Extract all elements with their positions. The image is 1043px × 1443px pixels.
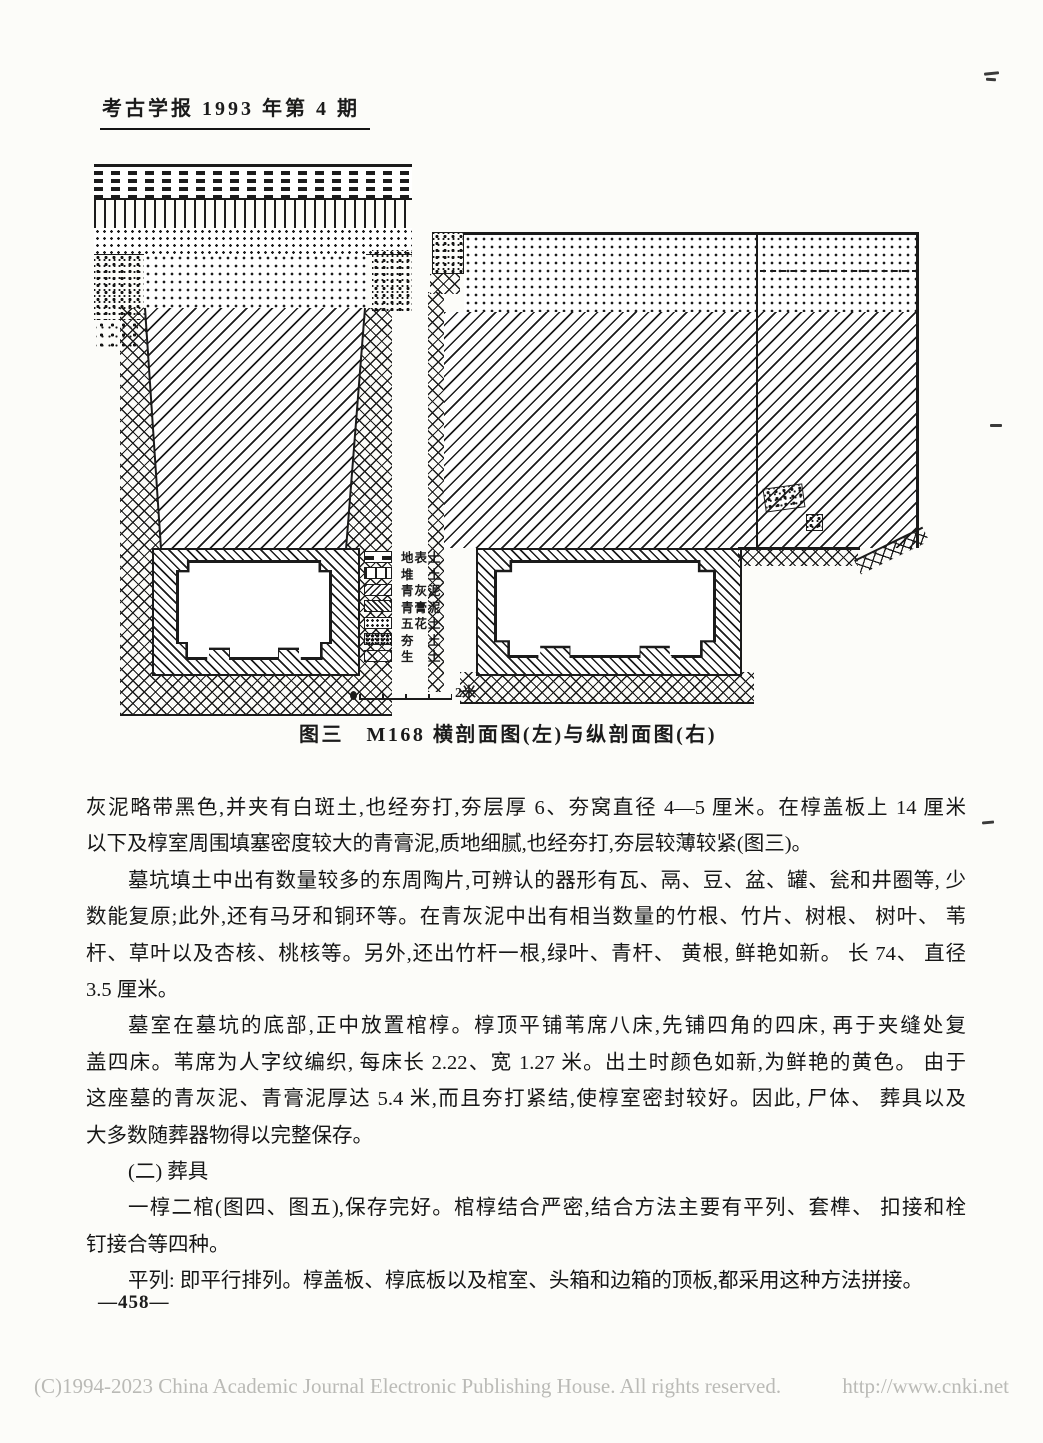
grey-clay-fill <box>144 308 366 548</box>
legend-label: 生 土 <box>401 646 442 665</box>
grey-clay-fill-right <box>444 312 919 548</box>
legend-swatch-piled-soil <box>364 567 392 579</box>
body-line: 钉接合等四种。 <box>86 1227 966 1263</box>
body-line: 以下及椁室周围填塞密度较大的青膏泥,质地细腻,也经夯打,夯层较薄较紧(图三)。 <box>86 826 966 862</box>
cnki-footer: (C)1994-2023 China Academic Journal Elec… <box>34 1374 1009 1399</box>
section-divider <box>756 312 758 548</box>
legend-swatch-paste-clay <box>364 600 392 612</box>
coffin-chamber <box>179 563 329 657</box>
body-line: 平列: 即平行排列。椁盖板、椁底板以及棺室、头箱和边箱的顶板,都采用这种方法拼接… <box>86 1263 966 1299</box>
section-heading: (二) 葬具 <box>86 1154 966 1190</box>
coffin-chamber-right <box>497 563 713 655</box>
body-line: 数能复原;此外,还有马牙和铜环等。在青灰泥中出有相当数量的竹根、竹片、树根、 树… <box>86 899 966 935</box>
rammed-earth-right-block <box>372 250 412 312</box>
scale-bar: 2米 <box>350 682 476 700</box>
figure-caption: 图三 M168 横剖面图(左)与纵剖面图(右) <box>88 718 928 747</box>
scale-line <box>359 692 452 700</box>
legend: 地表土 堆 土 青灰泥 青膏泥 五花土 夯 土 生 土 <box>364 550 484 666</box>
scan-artifact <box>982 820 994 824</box>
artifact-sketch-small <box>806 514 823 531</box>
body-line: 墓坑填土中出有数量较多的东周陶片,可辨认的器形有瓦、鬲、豆、盆、罐、瓮和井圈等,… <box>86 863 966 899</box>
scale-label: 2米 <box>455 682 476 702</box>
figure-three-tomb-sections: 地表土 堆 土 青灰泥 青膏泥 五花土 夯 土 生 土 2米 <box>88 158 928 763</box>
mottled-soil-band <box>94 228 412 255</box>
ledge-virgin-soil <box>738 549 858 566</box>
section-divider-top <box>756 232 758 312</box>
footer-copyright: (C)1994-2023 China Academic Journal Elec… <box>34 1374 781 1399</box>
legend-item: 地表土 <box>364 550 484 563</box>
body-line: 3.5 厘米。 <box>86 972 966 1008</box>
legend-swatch-surface-soil <box>364 551 392 563</box>
rammed-earth-top-left <box>432 232 464 274</box>
body-line: 这座墓的青灰泥、青膏泥厚达 5.4 米,而且夯打紧结,使椁室密封较好。因此, 尸… <box>86 1081 966 1117</box>
pit-upper-mottled-fill <box>144 254 366 310</box>
article-body: 灰泥略带黑色,并夹有白斑土,也经夯打,夯层厚 6、夯窝直径 4—5 厘米。在椁盖… <box>86 790 966 1300</box>
piled-soil-layer <box>94 198 412 230</box>
page-number: —458— <box>98 1292 170 1314</box>
footer-url-link[interactable]: http://www.cnki.net <box>842 1374 1009 1399</box>
legend-item: 青灰泥 <box>364 583 484 596</box>
body-line: 墓室在墓坑的底部,正中放置棺椁。椁顶平铺苇席八床,先铺四角的四床, 再于夹缝处复 <box>86 1008 966 1044</box>
legend-swatch-grey-clay <box>364 584 392 596</box>
body-line: 盖四床。苇席为人字纹编织, 每床长 2.22、宽 1.27 米。出土时颜色如新,… <box>86 1045 966 1081</box>
scan-artifact <box>984 71 999 75</box>
legend-item: 生 土 <box>364 649 484 662</box>
scan-artifact <box>990 424 1002 427</box>
body-line: 大多数随葬器物得以完整保存。 <box>86 1118 966 1154</box>
legend-item: 堆 土 <box>364 567 484 580</box>
legend-item: 五花土 <box>364 616 484 629</box>
surface-soil-layer <box>94 164 412 199</box>
scale-zero-dot <box>350 691 357 700</box>
mottled-soil-band-right <box>464 232 919 317</box>
scan-artifact <box>986 78 996 81</box>
scanned-journal-page: { "page": { "header": "考古学报 1993 年第 4 期"… <box>0 0 1043 1443</box>
virgin-soil-notch <box>430 274 460 294</box>
layer-dashed-line <box>760 270 918 272</box>
legend-swatch-rammed-earth <box>364 633 392 645</box>
legend-swatch-virgin-soil <box>364 650 392 662</box>
body-line: 灰泥略带黑色,并夹有白斑土,也经夯打,夯层厚 6、夯窝直径 4—5 厘米。在椁盖… <box>86 790 966 826</box>
body-line: 一椁二棺(图四、图五),保存完好。棺椁结合严密,结合方法主要有平列、套榫、 扣接… <box>86 1190 966 1226</box>
body-line: 杆、草叶以及杏核、桃核等。另外,还出竹杆一根,绿叶、青杆、 黄根, 鲜艳如新。 … <box>86 936 966 972</box>
legend-item: 青膏泥 <box>364 600 484 613</box>
legend-item: 夯 土 <box>364 633 484 646</box>
legend-swatch-mottled-soil <box>364 617 392 629</box>
journal-header: 考古学报 1993 年第 4 期 <box>100 92 370 130</box>
virgin-soil-bottom <box>460 672 754 704</box>
